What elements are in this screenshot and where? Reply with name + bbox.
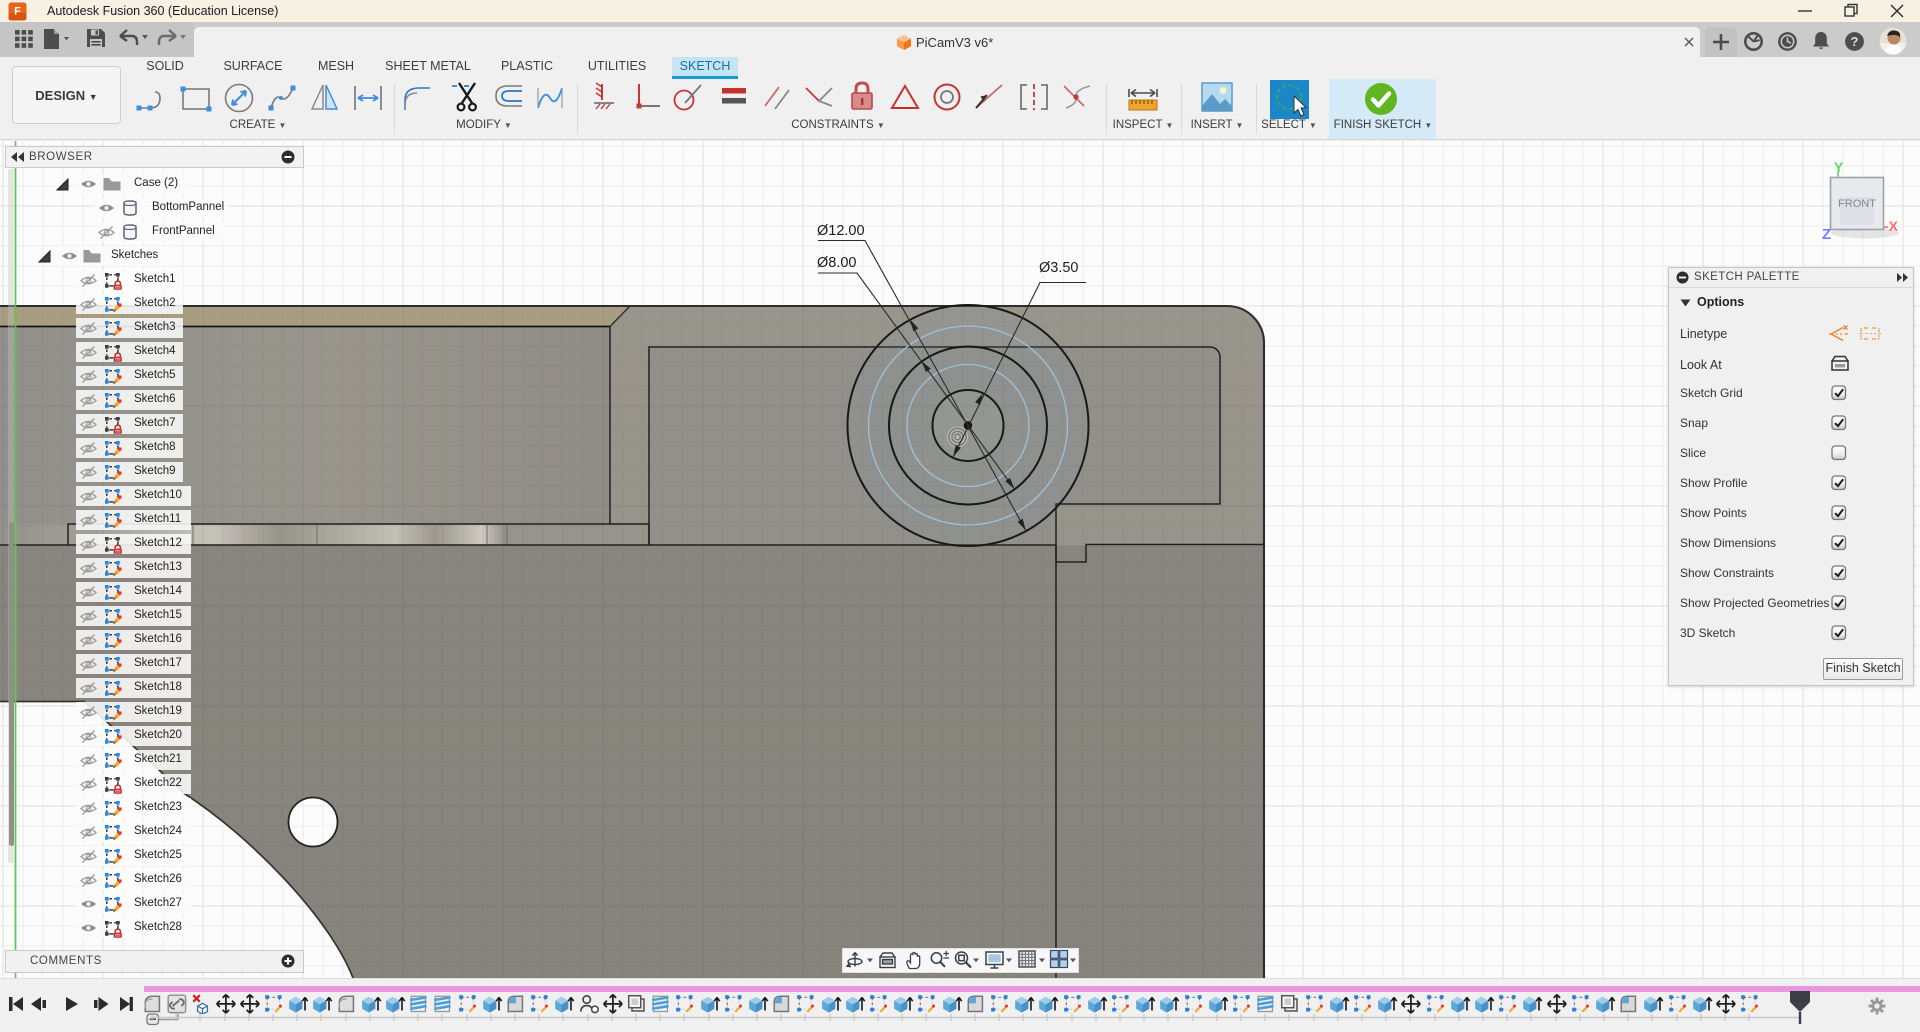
svg-text:Y: Y: [1834, 159, 1844, 175]
svg-text:F: F: [14, 6, 21, 18]
svg-text:Z: Z: [1822, 226, 1831, 243]
svg-text:Ø3.50: Ø3.50: [1039, 260, 1079, 276]
svg-text:FRONT: FRONT: [1838, 198, 1876, 210]
svg-text:Ø8.00: Ø8.00: [817, 255, 857, 271]
svg-text:-X: -X: [1884, 218, 1899, 234]
svg-text:Ø12.00: Ø12.00: [817, 223, 865, 239]
svg-text:?: ?: [1851, 34, 1859, 49]
